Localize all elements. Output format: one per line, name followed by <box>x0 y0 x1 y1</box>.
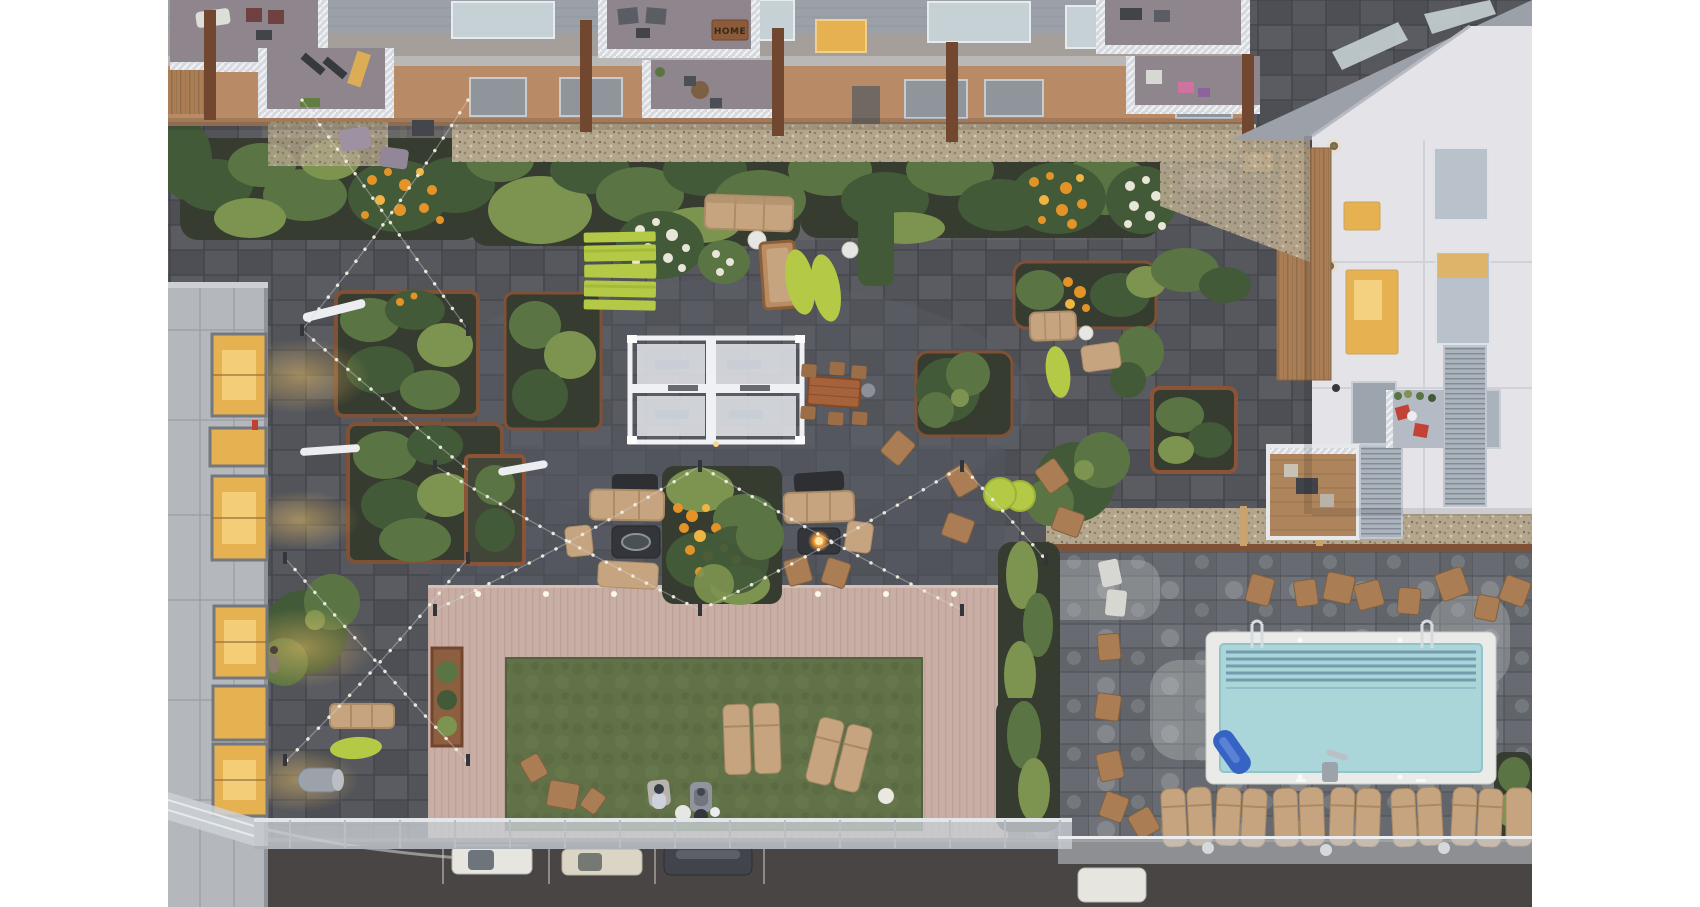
aerial-courtyard-photo: HOME <box>0 0 1700 907</box>
dusk-overlay <box>168 0 1532 907</box>
aerial-courtyard-photo-page: HOME <box>0 0 1700 907</box>
